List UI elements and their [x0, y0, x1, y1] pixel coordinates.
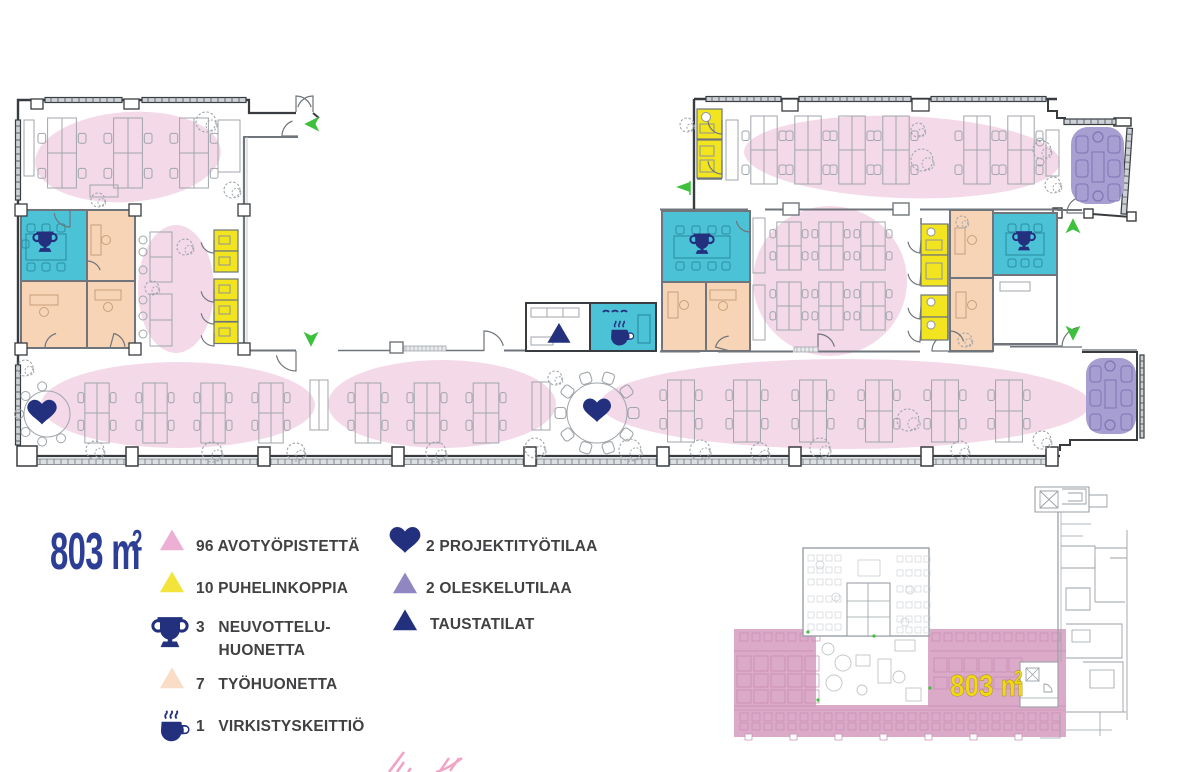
svg-text:2: 2 [132, 524, 143, 557]
svg-text:3 NEUVOTTELU-: 3 NEUVOTTELU- [196, 619, 331, 636]
svg-text:2: 2 [1014, 667, 1023, 689]
svg-text:96 AVOTYÖPISTETTÄ: 96 AVOTYÖPISTETTÄ [196, 538, 360, 555]
svg-text:2 PROJEKTITYÖTILAA: 2 PROJEKTITYÖTILAA [426, 538, 598, 555]
svg-text:803 m: 803 m [950, 669, 1024, 704]
svg-text:803 m: 803 m [50, 524, 140, 581]
svg-text:10 PUHELINKOPPIA: 10 PUHELINKOPPIA [196, 580, 348, 597]
svg-text:2 OLESKELUTILAA: 2 OLESKELUTILAA [426, 580, 572, 597]
svg-text:7 TYÖHUONETTA: 7 TYÖHUONETTA [196, 676, 337, 693]
svg-text:TAUSTATILAT: TAUSTATILAT [430, 616, 535, 633]
svg-text:HUONETTA: HUONETTA [196, 642, 305, 659]
svg-text:1 VIRKISTYSKEITTIÖ: 1 VIRKISTYSKEITTIÖ [196, 718, 365, 735]
